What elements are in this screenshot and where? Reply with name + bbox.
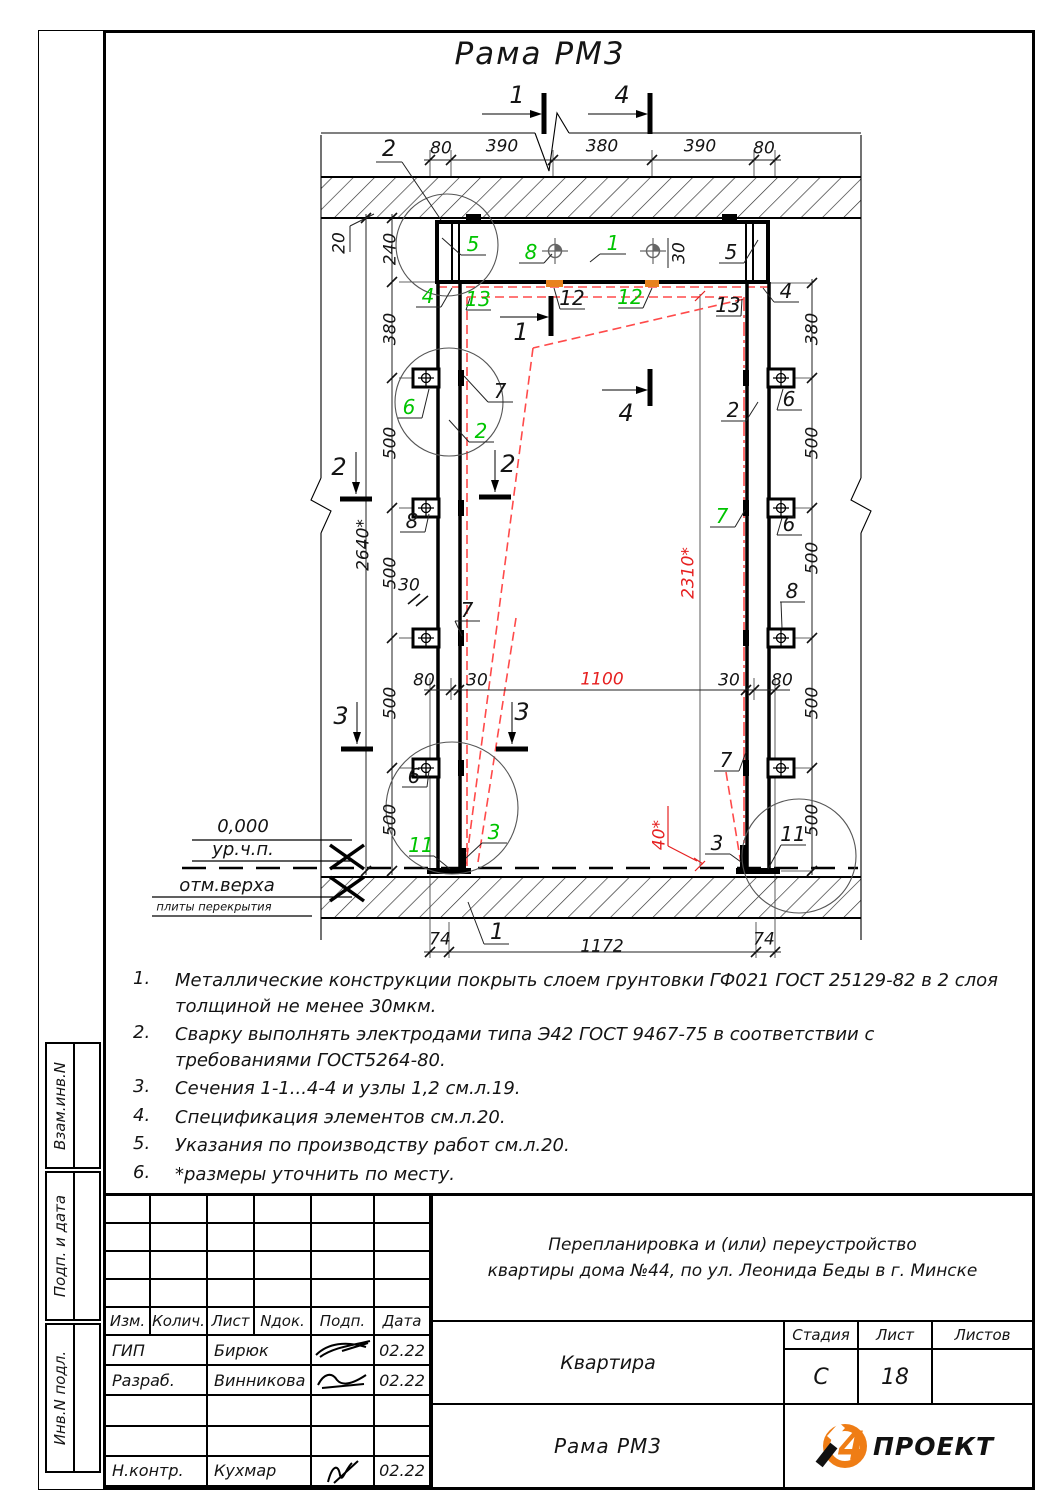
page-title: Рама РМ3	[370, 36, 710, 72]
staff-date: 02.22	[375, 1457, 431, 1487]
col-list: Лист	[208, 1308, 255, 1336]
company-logo: 4 ПРОЕКТ	[823, 1424, 994, 1468]
note-item: 4. Спецификация элементов см.л.20.	[133, 1105, 1005, 1131]
staff-role: Разраб.	[106, 1366, 208, 1396]
revision-header-row: Изм. Колич. Лист Nдок. Подп. Дата	[106, 1308, 431, 1336]
signature-nkontr	[312, 1457, 375, 1487]
note-text: Сечения 1-1...4-4 и узлы 1,2 см.л.19.	[175, 1076, 521, 1102]
stamp-label: Инв.N подл.	[51, 1351, 69, 1445]
staff-table: ГИП Бирюк 02.22 Разраб. Винникова 02.22	[106, 1336, 431, 1487]
revision-cell	[375, 1252, 431, 1280]
staff-row-gip: ГИП Бирюк 02.22	[106, 1336, 431, 1366]
note-text: Спецификация элементов см.л.20.	[175, 1105, 506, 1131]
stamp-label: Подп. и дата	[51, 1195, 69, 1297]
stage-table: Стадия Лист Листов С 18	[783, 1320, 1032, 1403]
revision-cell	[312, 1224, 375, 1252]
staff-date: 02.22	[375, 1336, 431, 1366]
sheet-value: 18	[859, 1350, 933, 1405]
col-data: Дата	[375, 1308, 431, 1336]
object-cell: Квартира	[431, 1320, 783, 1403]
title-block: Изм. Колич. Лист Nдок. Подп. Дата ГИП Би…	[103, 1193, 1035, 1490]
note-number: 1.	[133, 968, 175, 1019]
note-text: *размеры уточнить по месту.	[175, 1162, 455, 1188]
note-text: Указания по производству работ см.л.20.	[175, 1133, 570, 1159]
revision-grid	[106, 1196, 431, 1308]
staff-row-razrab: Разраб. Винникова 02.22	[106, 1366, 431, 1396]
stamp-inv-podl: Инв.N подл.	[45, 1323, 101, 1473]
note-item: 5. Указания по производству работ см.л.2…	[133, 1133, 1005, 1159]
notes-list: 1. Металлические конструкции покрыть сло…	[133, 968, 1005, 1190]
revision-cell	[375, 1280, 431, 1308]
frame-beam	[437, 222, 768, 282]
logo-text: ПРОЕКТ	[873, 1432, 994, 1461]
project-line-1: Перепланировка и (или) переустройство	[548, 1235, 916, 1255]
staff-role: ГИП	[106, 1336, 208, 1366]
note-item: 1. Металлические конструкции покрыть сло…	[133, 968, 1005, 1019]
stage-header: Стадия	[785, 1322, 859, 1350]
revision-cell	[208, 1252, 255, 1280]
note-number: 2.	[133, 1022, 175, 1073]
staff-row-nkontr: Н.контр. Кухмар 02.22	[106, 1457, 431, 1487]
note-number: 3.	[133, 1076, 175, 1102]
staff-name	[208, 1396, 312, 1426]
staff-role: Н.контр.	[106, 1457, 208, 1487]
revision-cell	[106, 1196, 151, 1224]
revision-cell	[106, 1224, 151, 1252]
signature-empty	[312, 1427, 375, 1457]
staff-role	[106, 1427, 208, 1457]
drawing-sheet: Рама РМ3 8039038039080240203805005005005…	[0, 0, 1060, 1500]
revision-cell	[208, 1280, 255, 1308]
top-slab-hatch	[321, 177, 861, 218]
staff-date	[375, 1427, 431, 1457]
revision-cell	[312, 1280, 375, 1308]
signature-empty	[312, 1396, 375, 1426]
stamp-podp-data: Подп. и дата	[45, 1171, 101, 1321]
revision-cell	[312, 1196, 375, 1224]
sheets-header: Листов	[933, 1322, 1032, 1350]
bottom-slab-hatch	[321, 877, 861, 918]
revision-cell	[106, 1252, 151, 1280]
revision-cell	[208, 1196, 255, 1224]
note-number: 6.	[133, 1162, 175, 1188]
revision-cell	[106, 1280, 151, 1308]
revision-cell	[255, 1196, 312, 1224]
col-izm: Изм.	[106, 1308, 151, 1336]
note-item: 6. *размеры уточнить по месту.	[133, 1162, 1005, 1188]
logo-slash-icon	[816, 1443, 838, 1467]
staff-row-empty	[106, 1427, 431, 1457]
revision-cell	[312, 1252, 375, 1280]
staff-date: 02.22	[375, 1366, 431, 1396]
sheets-value	[933, 1350, 1032, 1405]
weld-mark	[645, 280, 659, 287]
logo-circle-icon: 4	[823, 1424, 867, 1468]
revision-cell	[375, 1224, 431, 1252]
revision-cell	[375, 1196, 431, 1224]
frame-columns	[438, 282, 769, 869]
stamp-vzam-inv: Взам.инв.N	[45, 1042, 101, 1169]
staff-date	[375, 1396, 431, 1426]
note-text: Сварку выполнять электродами типа Э42 ГО…	[175, 1022, 1005, 1073]
signature-razrab	[312, 1366, 375, 1396]
sheet-header: Лист	[859, 1322, 933, 1350]
staff-name: Кухмар	[208, 1457, 312, 1487]
col-kolich: Колич.	[151, 1308, 208, 1336]
staff-name	[208, 1427, 312, 1457]
staff-name: Бирюк	[208, 1336, 312, 1366]
col-ndok: Nдок.	[255, 1308, 312, 1336]
revision-cell	[255, 1252, 312, 1280]
stage-value: С	[785, 1350, 859, 1405]
staff-role	[106, 1396, 208, 1426]
note-number: 5.	[133, 1133, 175, 1159]
stamp-label: Взам.инв.N	[51, 1062, 69, 1150]
logo-digit: 4	[838, 1427, 866, 1467]
project-line-2: квартиры дома №44, по ул. Леонида Беды в…	[488, 1261, 978, 1281]
revision-cell	[151, 1196, 208, 1224]
revision-cell	[151, 1252, 208, 1280]
revision-cell	[255, 1224, 312, 1252]
staff-row-empty	[106, 1396, 431, 1426]
note-number: 4.	[133, 1105, 175, 1131]
sheet-name-cell: Рама РМ3	[431, 1403, 783, 1487]
weld-mark	[546, 280, 563, 287]
revision-cell	[151, 1280, 208, 1308]
note-item: 3. Сечения 1-1...4-4 и узлы 1,2 см.л.19.	[133, 1076, 1005, 1102]
signature-gip	[312, 1336, 375, 1366]
staff-name: Винникова	[208, 1366, 312, 1396]
note-text: Металлические конструкции покрыть слоем …	[175, 968, 1005, 1019]
revision-cell	[151, 1224, 208, 1252]
col-podp: Подп.	[312, 1308, 375, 1336]
project-description: Перепланировка и (или) переустройство кв…	[431, 1196, 1032, 1320]
logo-cell: 4 ПРОЕКТ	[783, 1403, 1032, 1487]
note-item: 2. Сварку выполнять электродами типа Э42…	[133, 1022, 1005, 1073]
anchor-plate-icon	[413, 369, 794, 777]
revision-cell	[208, 1224, 255, 1252]
revision-cell	[255, 1280, 312, 1308]
